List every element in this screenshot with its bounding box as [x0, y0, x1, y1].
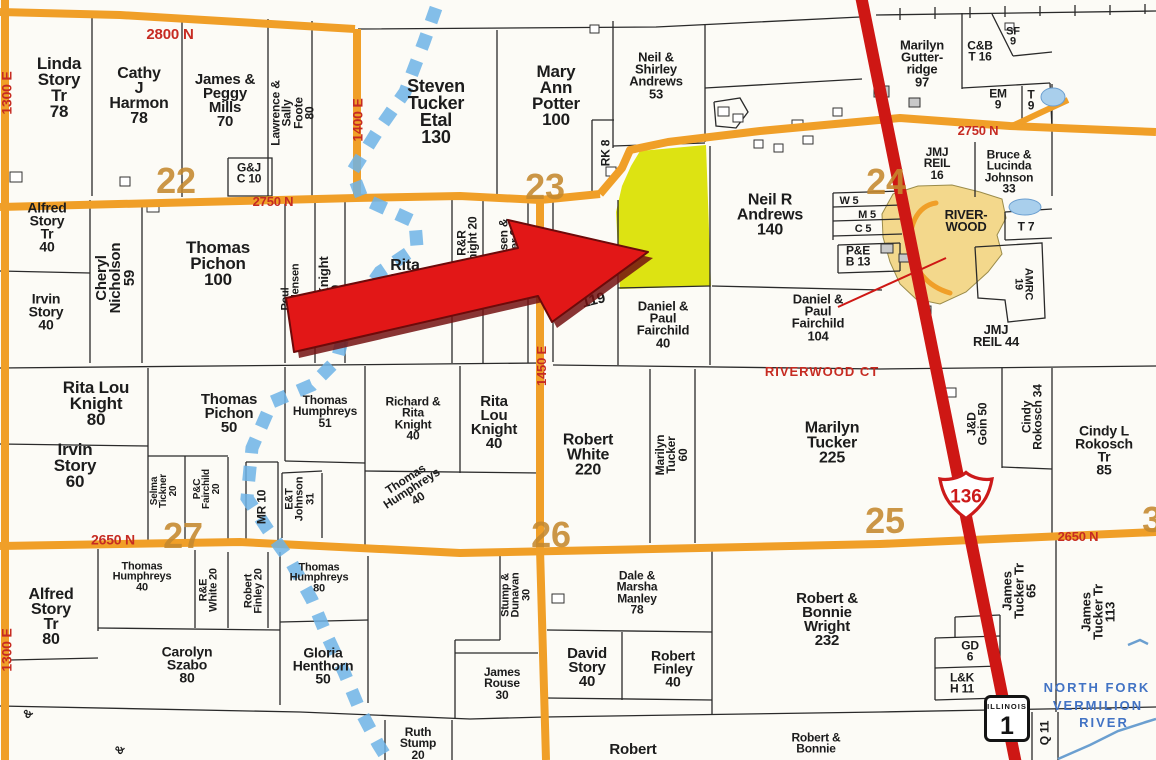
parcel-t7: T 7 [1018, 221, 1035, 232]
parcel-119-fragment: e119 [577, 277, 607, 310]
parcel-cindy-rokosch-tr: Cindy LRokoschTr85 [1075, 425, 1133, 478]
map-labels-layer: 22232427262532800 N1300 E1300 E1400 E275… [0, 0, 1156, 760]
parcel-thomas-pichon-100: ThomasPichon100 [186, 240, 250, 288]
parcel-rita-lou-knight-80a: RitaLouKnight80 [380, 258, 429, 318]
parcel-alfred-story-80: AlfredStoryTr80 [28, 587, 73, 647]
river-name-1: NORTH FORK [1044, 682, 1151, 694]
us-shield-outline [940, 473, 992, 519]
parcel-gj-c: G&JC 10 [237, 163, 262, 186]
parcel-cathy-harmon: CathyJHarmon78 [109, 66, 168, 126]
section-23: 23 [525, 170, 565, 204]
parcel-jd-goin: J&DGoin 50 [967, 403, 990, 446]
parcel-c5: C 5 [855, 224, 872, 234]
illinois-route-1-shield: ILLINOIS 1 [983, 694, 1031, 743]
parcel-rk8: RK 8 [600, 140, 611, 167]
road-1300e-top: 1300 E [0, 71, 13, 114]
parcel-james-tucker-113: JamesTucker Tr113 [1081, 584, 1118, 640]
parcel-marilyn-tucker-60: MarilynTucker60 [655, 435, 689, 476]
parcel-rita-lou-knight-80b: Rita LouKnight80 [63, 380, 129, 428]
parcel-bruce-lucinda-johnson: Bruce &LucindaJohnson33 [985, 149, 1034, 194]
parcel-jmj-reil-16: JMJREIL16 [924, 147, 951, 181]
section-25: 25 [865, 504, 905, 538]
parcel-q11: Q 11 [1039, 721, 1050, 746]
section-24: 24 [866, 165, 906, 199]
parcel-robert-finley-20: RobertFinley 20 [244, 568, 265, 613]
parcel-cindy-rokosch-34: CindyRokosch 34 [1022, 384, 1045, 449]
road-2750n-east: 2750 N [958, 125, 999, 137]
parcel-sf9: SF9 [1006, 27, 1020, 48]
road-2650n-west: 2650 N [91, 533, 135, 546]
parcel-richard-rita-knight: Richard &RitaKnight40 [386, 396, 441, 441]
il-route-number: 1 [1000, 712, 1014, 740]
il-shield-outline [986, 697, 1029, 741]
parcel-linda-story: LindaStoryTr78 [37, 56, 81, 120]
road-2650n-east: 2650 N [1058, 531, 1099, 543]
parcel-stump-dunavan: Stump &Dunavan30 [501, 572, 532, 617]
parcel-rita-lou-knight-40: RitaLouKnight40 [471, 395, 517, 451]
parcel-selma-tickner: SelmaTickner20 [150, 474, 178, 508]
parcel-et-johnson: E&TJohnson31 [285, 477, 316, 521]
il-shield-state: ILLINOIS [987, 702, 1027, 711]
parcel-mr10: MR 10 [256, 490, 267, 524]
parcel-mary-ann-potter: MaryAnnPotter100 [532, 64, 580, 128]
parcel-thomas-humphreys-80: ThomasHumphreys80 [290, 563, 349, 594]
parcel-lk-h11: L&KH 11 [950, 673, 974, 696]
parcel-neil-r-andrews: Neil RAndrews140 [737, 192, 803, 237]
parcel-w5: W 5 [840, 196, 859, 206]
section-22: 22 [156, 164, 196, 198]
river-name-2: VERMILION [1053, 700, 1143, 712]
parcel-neil-shirley-andrews: Neil &ShirleyAndrews53 [629, 52, 683, 101]
parcel-pc-fairchild: P&CFairchild20 [193, 469, 221, 509]
parcel-re-white: R&EWhite 20 [199, 568, 220, 612]
parcel-pe-b13: P&EB 13 [846, 246, 871, 269]
road-2750n-west: 2750 N [253, 196, 294, 208]
parcel-gloria-henthorn: GloriaHenthorn50 [293, 646, 354, 685]
parcel-m5: M 5 [858, 210, 876, 220]
road-riverwood-ct: RIVERWOOD CT [765, 366, 879, 378]
parcel-david-story: DavidStory40 [567, 647, 607, 689]
us-route-number: 136 [950, 487, 982, 508]
road-1300e-bottom: 1300 E [0, 628, 13, 671]
parcel-thomas-pichon-50: ThomasPichon50 [201, 393, 257, 435]
parcel-james-peggy-mills: James &PeggyMills70 [195, 73, 255, 129]
fragment-amp-2: & [21, 707, 35, 721]
parcel-dale-marsha-manley: Dale &MarshaManley78 [617, 570, 658, 615]
parcel-irvin-story-60: IrvinStory60 [54, 442, 96, 490]
parcel-thomas-humphreys-40b: ThomasHumphreys40 [113, 562, 172, 593]
plat-map: 22232427262532800 N1300 E1300 E1400 E275… [0, 0, 1156, 760]
parcel-ruth-stump: RuthStump20 [400, 727, 436, 760]
parcel-steven-tucker: StevenTuckerEtal130 [407, 78, 465, 146]
us-route-136-shield: 136 [936, 469, 996, 522]
parcel-marilyn-gutterridge: MarilynGutter-ridge97 [900, 40, 944, 89]
parcel-lawrence-sally-foote: Lawrence &SallyFoote80 [270, 80, 315, 145]
parcel-poul-bjerre-jensen: PoulBjerre-Jensen40 [281, 264, 312, 335]
parcel-thomas-humphreys-40a: ThomasHumphreys40 [376, 457, 448, 520]
river-name-3: RIVER [1079, 717, 1129, 729]
section-3-partial: 3 [1142, 503, 1156, 537]
road-1400e: 1400 E [351, 98, 364, 141]
parcel-t9: T9 [1027, 90, 1034, 113]
parcel-irvin-story-40: IrvinStory40 [29, 292, 64, 331]
parcel-robert-white: RobertWhite220 [563, 432, 613, 477]
parcel-carolyn-szabo: CarolynSzabo80 [162, 645, 213, 684]
section-26: 26 [531, 518, 571, 552]
parcel-robert-bonnie-partial: Robert &Bonnie [791, 733, 840, 756]
road-1450e: 1450 E [536, 346, 548, 386]
parcel-fairchild-40: Daniel &PaulFairchild40 [637, 301, 689, 350]
road-2800n: 2800 N [146, 28, 193, 42]
parcel-jensen-fragment: nsen &ter 20 [499, 219, 522, 258]
parcel-robert-finley-40: RobertFinley40 [651, 649, 695, 688]
parcel-cheryl-nicholson: CherylNicholson59 [95, 243, 137, 314]
parcel-thomas-humphreys-51: ThomasHumphreys51 [293, 395, 357, 429]
parcel-em9: EM9 [989, 89, 1007, 112]
section-27: 27 [163, 519, 203, 553]
fragment-amp-1: & [113, 744, 127, 757]
parcel-james-rouse: JamesRouse30 [484, 667, 520, 701]
riverwood-name: RIVER-WOOD [945, 209, 988, 233]
parcel-robert-partial: Robert [609, 743, 656, 757]
parcel-gd6: GD6 [961, 641, 979, 664]
parcel-amrc: AMRC19 [1013, 268, 1034, 300]
parcel-fairchild-104: Daniel &PaulFairchild104 [792, 294, 844, 343]
parcel-rr-knight-20: R&RKnight 20 [457, 217, 480, 270]
parcel-james-tucker-65: JamesTucker Tr65 [1002, 563, 1039, 619]
parcel-jmj-reil-44: JMJREIL 44 [973, 324, 1019, 348]
parcel-robert-bonnie-wright: Robert &BonnieWright232 [796, 592, 858, 648]
parcel-cb-t16: C&BT 16 [967, 41, 992, 64]
parcel-alfred-story-40: AlfredStoryTr40 [27, 202, 66, 255]
parcel-rr-knight-40: R&R Knight40 [318, 257, 342, 328]
parcel-marilyn-tucker-225: MarilynTucker225 [805, 420, 860, 465]
